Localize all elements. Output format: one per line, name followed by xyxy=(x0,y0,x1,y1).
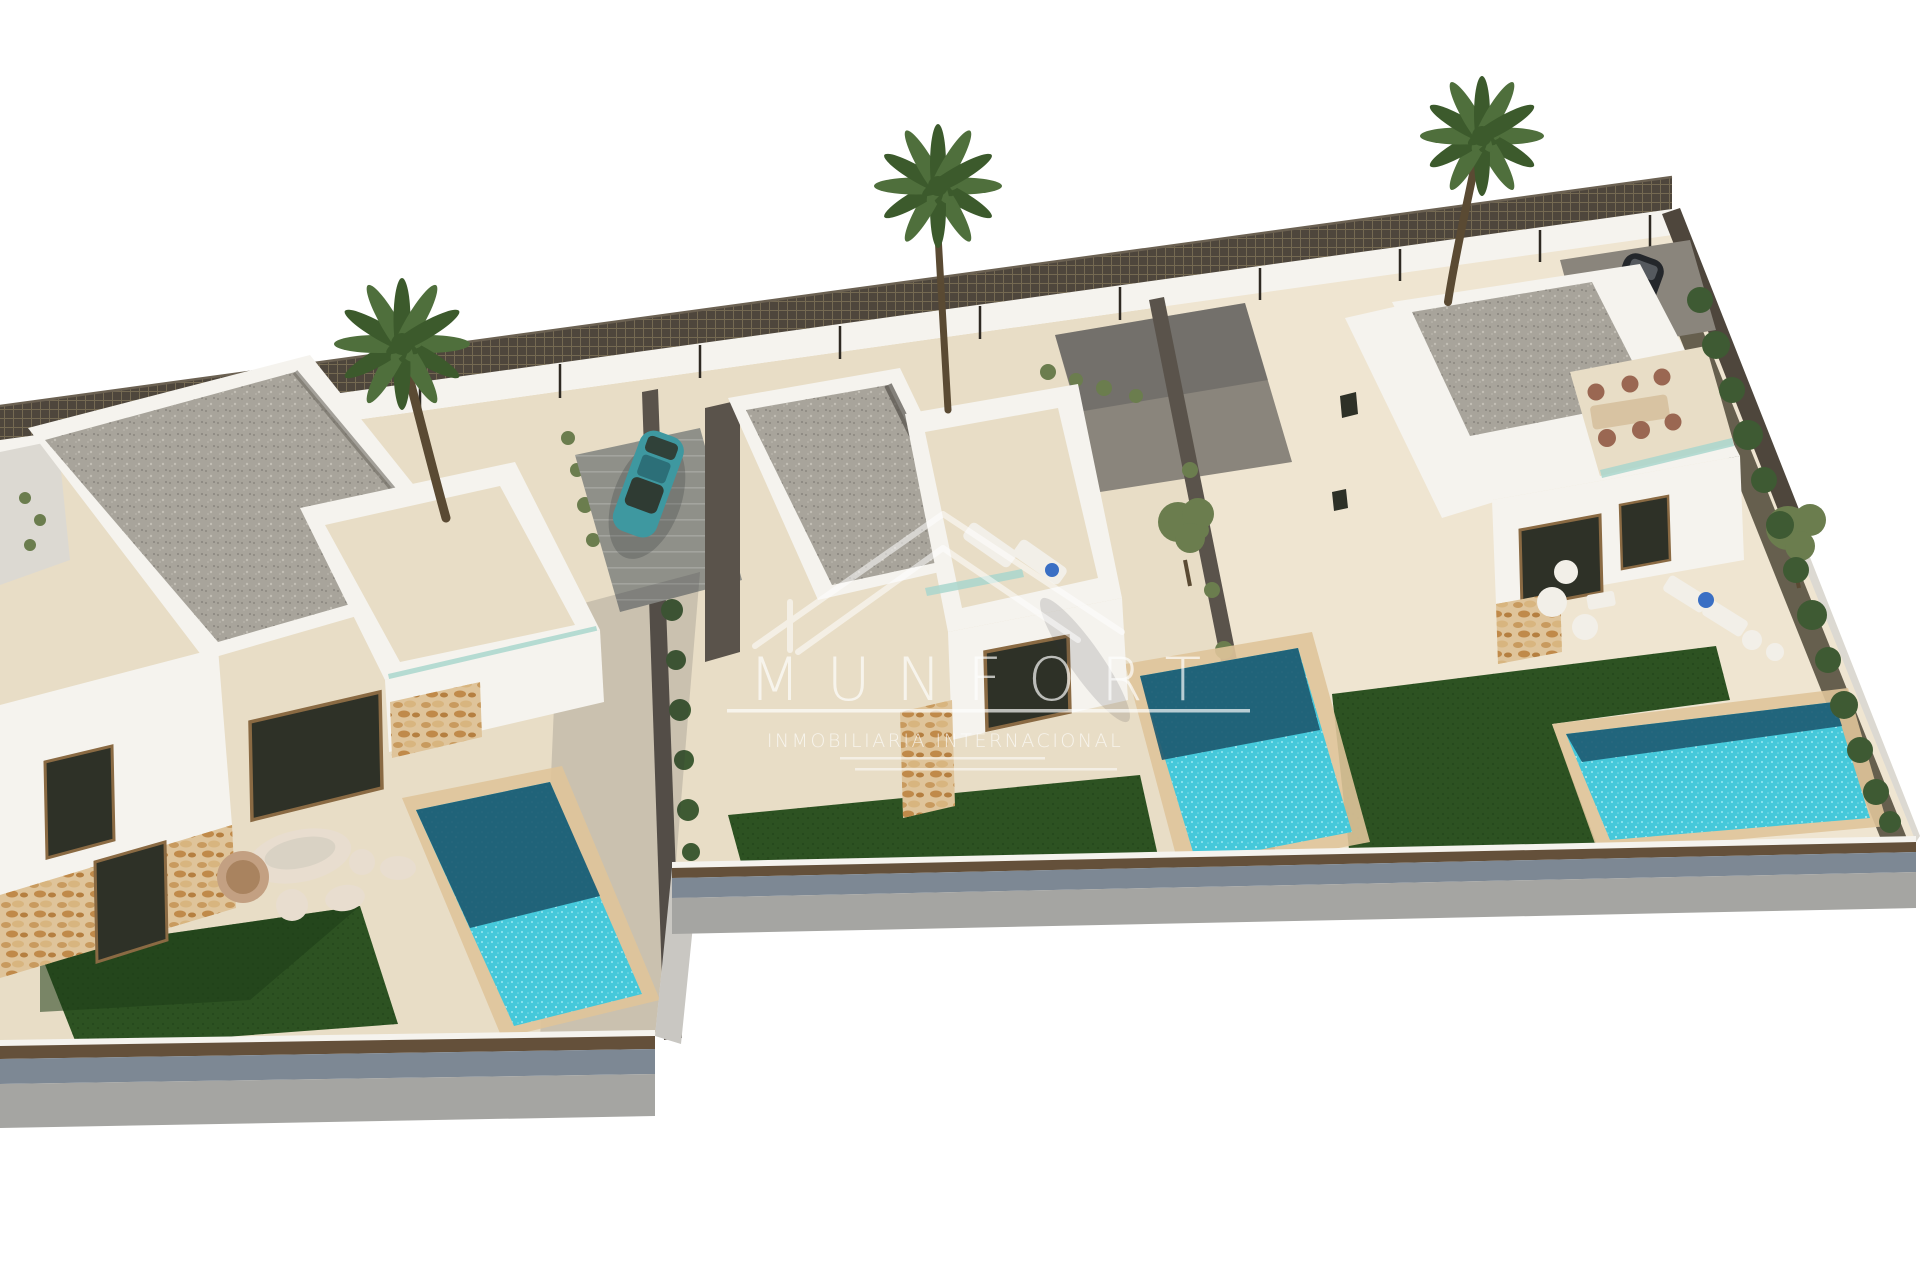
villa-1-window-upper xyxy=(45,746,114,858)
villa-3-small-window-2 xyxy=(1332,489,1348,511)
watermark-tagline: INMOBILIARIA INTERNACIONAL xyxy=(767,730,1123,752)
render-canvas: Aerial 3D architectural render of three … xyxy=(0,0,1920,1280)
villa-2-side-wall xyxy=(705,400,740,662)
villa-aerial-render: Aerial 3D architectural render of three … xyxy=(0,0,1920,1280)
blue-towel xyxy=(1045,563,1059,577)
blue-towel-2 xyxy=(1698,592,1714,608)
watermark-divider-1 xyxy=(727,709,1250,713)
watermark-brand: MUNFORT xyxy=(749,645,1227,715)
villa-3-small-window-1 xyxy=(1340,392,1358,418)
watermark-divider-2 xyxy=(840,757,1045,760)
villa-1-window-lower xyxy=(95,842,167,962)
villa-3-window-small xyxy=(1620,496,1670,569)
watermark-divider-3 xyxy=(855,768,1117,771)
